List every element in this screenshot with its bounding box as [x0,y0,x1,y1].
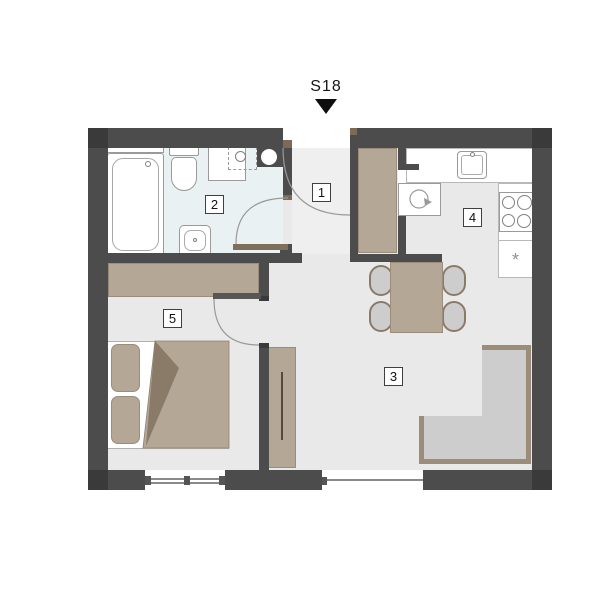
kitchen-sink-basin [461,155,483,175]
room-label-bedroom: 5 [163,309,182,328]
bathtub-basin [112,158,159,251]
bedroom-door-leaf [213,293,261,299]
unit-label: S18 [296,78,356,96]
wall [225,470,322,490]
wardrobe-bedroom [108,263,259,297]
burner-icon [502,214,515,227]
room-label-bathroom: 2 [205,195,224,214]
wall [532,128,552,490]
sink-drain-icon [193,238,197,242]
floor-plan: S18 * [0,0,600,600]
wall-dining [350,254,442,262]
wardrobe-handle [281,372,283,440]
window-mullion [219,476,225,485]
shaft-circle-icon [261,149,277,165]
window-mullion [145,476,151,485]
dining-table [390,262,443,333]
wall-corner [88,128,108,148]
wall-corner [532,470,552,490]
wall [88,128,108,490]
wall [350,128,552,148]
wall-bath-bottom [108,253,302,263]
fridge [398,183,441,216]
dining-chair [442,265,466,296]
burner-icon [502,196,515,209]
burner-icon [517,195,532,210]
bathtub-drain-icon [145,161,151,167]
window-mullion [184,476,190,485]
wall [88,128,283,148]
wall-kitchen-stub-foot [398,164,419,170]
burner-icon [517,214,531,228]
wall-hall-dining [350,141,358,254]
wall-bath-hall [283,148,292,195]
faucet-icon [470,152,475,157]
wall-kitchen-left [398,216,406,262]
wall-bedroom-living [259,343,269,470]
entrance-marker-icon [315,99,337,114]
door-frame-cap [350,128,357,135]
toilet-bowl [171,157,197,191]
pillow [111,396,140,444]
wardrobe-hall [358,148,397,253]
wall-stub-bedroom [259,263,269,296]
room-label-living: 3 [384,367,403,386]
room-label-kitchen: 4 [463,208,482,227]
sofa-seat [424,416,526,459]
washer-door-icon [235,151,246,162]
bathroom-door-leaf [233,244,288,250]
door-frame-cap [283,195,292,200]
pillow [111,344,140,392]
dining-chair [442,301,466,332]
window-living [322,471,423,490]
wall-corner [88,470,108,490]
room-label-hallway: 1 [312,183,331,202]
wall-corner [532,128,552,148]
window-mullion [322,477,327,485]
door-frame-cap [283,140,292,148]
window-glazing [322,479,423,481]
wall-cap [259,343,269,348]
freezer-symbol: * [498,240,533,278]
